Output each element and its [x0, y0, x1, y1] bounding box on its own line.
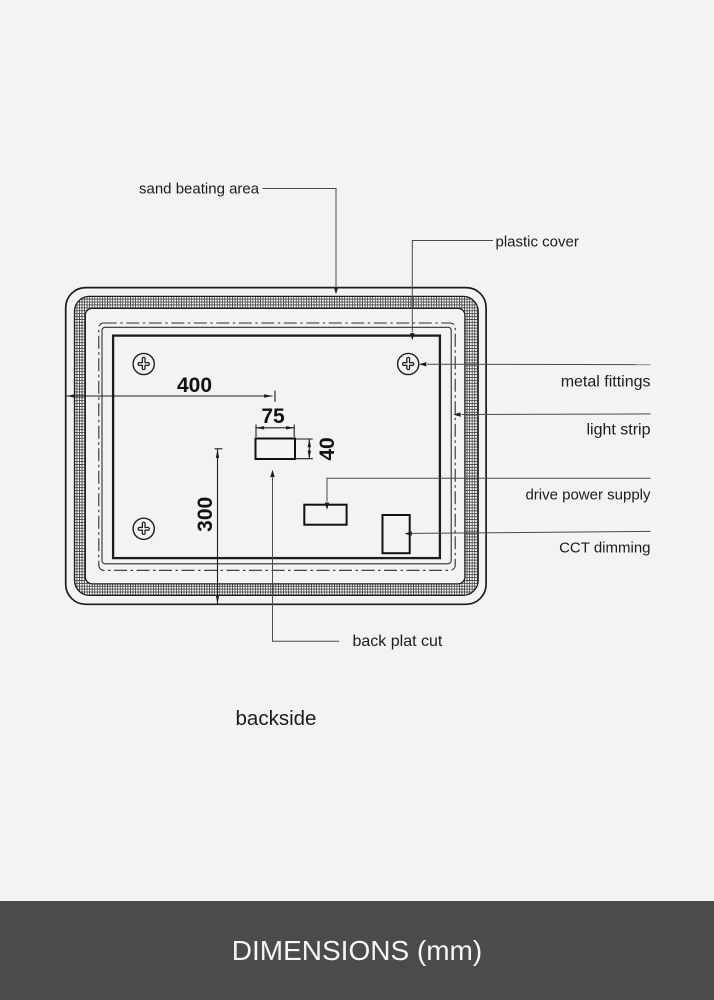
svg-text:drive power supply: drive power supply: [525, 487, 651, 504]
svg-text:300: 300: [194, 497, 217, 532]
svg-text:DIMENSIONS (mm): DIMENSIONS (mm): [232, 935, 482, 966]
svg-text:back plat cut: back plat cut: [353, 633, 443, 650]
svg-text:plastic cover: plastic cover: [496, 234, 579, 251]
svg-text:metal fittings: metal fittings: [561, 374, 651, 391]
svg-text:backside: backside: [236, 707, 317, 730]
svg-text:40: 40: [316, 437, 339, 460]
svg-text:400: 400: [177, 374, 212, 397]
svg-text:75: 75: [261, 405, 285, 428]
svg-text:sand beating area: sand beating area: [139, 181, 260, 198]
svg-text:CCT dimming: CCT dimming: [559, 540, 650, 557]
svg-text:light strip: light strip: [586, 422, 650, 439]
